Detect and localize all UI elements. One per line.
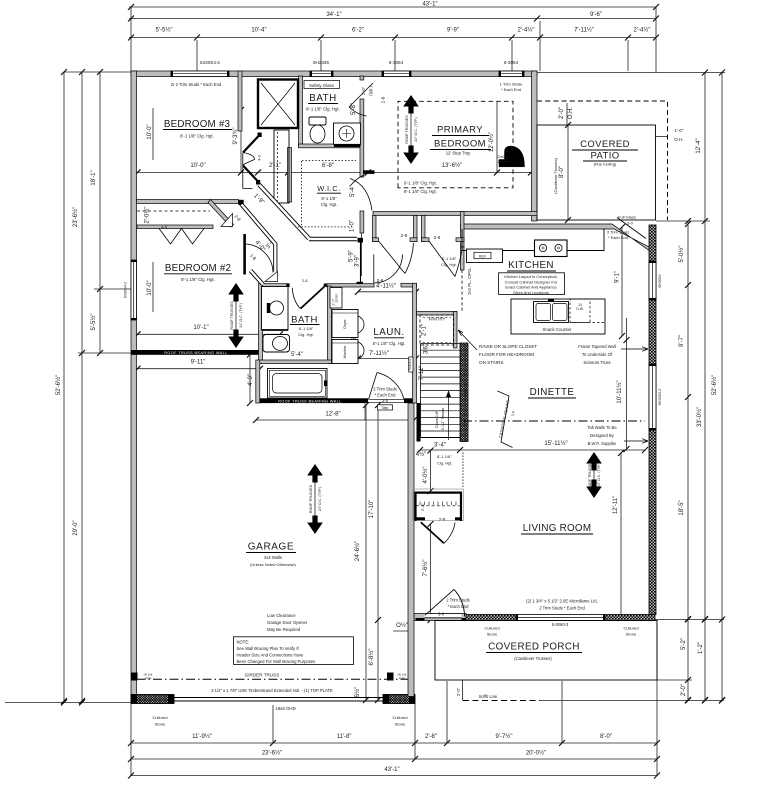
svg-text:B.W.P. Supplier: B.W.P. Supplier bbox=[588, 441, 617, 446]
svg-text:Washer: Washer bbox=[343, 345, 347, 359]
svg-text:2'-0": 2'-0" bbox=[456, 687, 461, 696]
svg-text:4'-11½": 4'-11½" bbox=[376, 283, 396, 290]
svg-text:6-3054: 6-3054 bbox=[504, 60, 519, 65]
svg-text:(typ.): (typ.) bbox=[368, 86, 373, 96]
svg-text:5'-4": 5'-4" bbox=[350, 185, 356, 197]
svg-text:(2) 1 3/4" x 5 1/2" 2.0E Micro: (2) 1 3/4" x 5 1/2" 2.0E Microllame LVL bbox=[526, 599, 598, 604]
svg-text:9'-6": 9'-6" bbox=[590, 12, 602, 18]
svg-text:See Wall Bracing Plan To Verif: See Wall Bracing Plan To Verify If bbox=[237, 646, 300, 651]
svg-text:3 Trim Studs: 3 Trim Studs bbox=[607, 230, 629, 235]
svg-text:5'-5½": 5'-5½" bbox=[90, 314, 97, 331]
svg-text:FLOOR FOR HEADROOM: FLOOR FOR HEADROOM bbox=[479, 352, 534, 357]
svg-text:6H2436: 6H2436 bbox=[313, 60, 330, 65]
svg-text:8'-1 1/8": 8'-1 1/8" bbox=[299, 326, 314, 331]
svg-text:9'-1 1/8" Clg. Hgt.: 9'-1 1/8" Clg. Hgt. bbox=[404, 181, 437, 186]
svg-text:1'-7": 1'-7" bbox=[332, 298, 336, 306]
svg-text:8'-1 1/8": 8'-1 1/8" bbox=[437, 454, 452, 459]
svg-text:ROOF TRUSS BEARING WALL: ROOF TRUSS BEARING WALL bbox=[164, 351, 227, 355]
svg-text:2-8: 2-8 bbox=[434, 235, 441, 240]
svg-text:3'6": 3'6" bbox=[424, 344, 430, 354]
svg-text:3'-9": 3'-9" bbox=[355, 255, 361, 267]
svg-text:8'-1 1/8": 8'-1 1/8" bbox=[321, 196, 337, 201]
svg-text:9 1/2" Treads: 9 1/2" Treads bbox=[441, 408, 445, 431]
svg-text:COVERED: COVERED bbox=[580, 139, 630, 150]
svg-text:REF: REF bbox=[479, 255, 487, 259]
svg-text:3 1/2" x 1 7/8" USE Timberstra: 3 1/2" x 1 7/8" USE Timberstrand Extende… bbox=[211, 688, 333, 693]
svg-text:Clg. Hgt.: Clg. Hgt. bbox=[321, 202, 337, 207]
svg-text:LAUN.: LAUN. bbox=[373, 327, 404, 338]
svg-text:3'-4": 3'-4" bbox=[434, 443, 446, 449]
svg-text:2'-0": 2'-0" bbox=[681, 684, 687, 696]
svg-text:24" O.C. (TYP.): 24" O.C. (TYP.) bbox=[414, 117, 418, 142]
svg-text:Down 14R: Down 14R bbox=[435, 410, 439, 428]
svg-text:2'-1": 2'-1" bbox=[269, 163, 281, 169]
svg-text:2-8: 2-8 bbox=[439, 517, 446, 522]
svg-text:6430S4-2: 6430S4-2 bbox=[124, 282, 128, 298]
svg-text:10'-0": 10'-0" bbox=[190, 163, 205, 169]
svg-text:O.H.: O.H. bbox=[568, 107, 574, 120]
svg-text:Sizes And Locations: Sizes And Locations bbox=[513, 290, 549, 295]
svg-text:Tall Walls To Be: Tall Walls To Be bbox=[587, 425, 617, 430]
svg-text:10'-0": 10'-0" bbox=[147, 280, 153, 295]
svg-text:4'-0½": 4'-0½" bbox=[422, 467, 429, 484]
svg-text:10'-0": 10'-0" bbox=[147, 124, 153, 139]
svg-text:ROOF TRUSSES: ROOF TRUSSES bbox=[405, 115, 409, 144]
svg-text:29'-0": 29'-0" bbox=[73, 520, 79, 535]
svg-text:Exact Cabinet And Appliance: Exact Cabinet And Appliance bbox=[505, 285, 557, 290]
svg-text:6H3054-2: 6H3054-2 bbox=[658, 389, 662, 406]
svg-text:2'-4½": 2'-4½" bbox=[518, 27, 535, 34]
svg-text:18x8 OHD: 18x8 OHD bbox=[275, 706, 296, 711]
svg-text:W.I.C.: W.I.C. bbox=[317, 184, 340, 193]
svg-text:15'-11½": 15'-11½" bbox=[544, 440, 567, 447]
svg-text:studs: studs bbox=[399, 676, 406, 680]
svg-text:11'-8": 11'-8" bbox=[337, 734, 352, 740]
svg-text:* Each End: * Each End bbox=[448, 604, 470, 609]
svg-text:Stone: Stone bbox=[395, 722, 406, 727]
svg-text:Garage Door Opener: Garage Door Opener bbox=[267, 620, 308, 625]
svg-text:Clg. Hgt.: Clg. Hgt. bbox=[437, 461, 453, 466]
svg-text:4-0: 4-0 bbox=[161, 225, 168, 230]
svg-text:Low Clearance: Low Clearance bbox=[267, 613, 296, 618]
svg-text:7'-11½": 7'-11½" bbox=[574, 27, 594, 34]
svg-text:(Unless Noted Otherwise): (Unless Noted Otherwise) bbox=[250, 562, 296, 567]
svg-text:43'-1": 43'-1" bbox=[422, 2, 437, 8]
svg-text:6H3054: 6H3054 bbox=[658, 274, 662, 287]
svg-text:2'-0": 2'-0" bbox=[559, 107, 565, 119]
svg-text:3-0: 3-0 bbox=[382, 398, 389, 403]
svg-text:NOTE:: NOTE: bbox=[237, 640, 250, 645]
svg-text:BATH: BATH bbox=[309, 93, 336, 104]
svg-text:9'-11": 9'-11" bbox=[191, 360, 206, 366]
svg-text:3-0: 3-0 bbox=[438, 612, 445, 617]
svg-text:8'-0": 8'-0" bbox=[559, 166, 565, 178]
svg-text:DINETTE: DINETTE bbox=[530, 387, 575, 398]
svg-text:5'-4": 5'-4" bbox=[291, 352, 303, 358]
svg-text:3-0 PL. OPG.: 3-0 PL. OPG. bbox=[467, 267, 472, 295]
svg-text:10'-11½": 10'-11½" bbox=[616, 380, 623, 403]
svg-text:2 Trim Studs: 2 Trim Studs bbox=[373, 387, 397, 392]
svg-text:PRIMARY: PRIMARY bbox=[437, 125, 483, 136]
svg-text:ON STAIRS.: ON STAIRS. bbox=[479, 360, 505, 365]
svg-text:5½": 5½" bbox=[354, 687, 361, 697]
svg-text:Ceiling: Ceiling bbox=[498, 155, 509, 159]
svg-text:O.H.: O.H. bbox=[674, 137, 683, 142]
svg-text:2'-1": 2'-1" bbox=[422, 324, 428, 336]
svg-text:1'-0": 1'-0" bbox=[674, 128, 684, 133]
svg-text:Cultured: Cultured bbox=[152, 715, 167, 720]
svg-text:12' Step Tray: 12' Step Tray bbox=[446, 151, 471, 156]
svg-text:HAND RAIL: HAND RAIL bbox=[463, 382, 467, 398]
svg-text:11'-9½": 11'-9½" bbox=[192, 733, 212, 740]
svg-text:Cultured: Cultured bbox=[623, 626, 638, 631]
svg-text:5-3060-3: 5-3060-3 bbox=[552, 622, 569, 627]
svg-text:2'-0½": 2'-0½" bbox=[144, 207, 151, 224]
svg-text:12'-8": 12'-8" bbox=[325, 412, 340, 418]
svg-text:6'-8½": 6'-8½" bbox=[368, 649, 375, 666]
svg-text:Profile: Profile bbox=[498, 160, 508, 164]
svg-text:3-0: 3-0 bbox=[627, 221, 634, 226]
svg-text:* Each End: * Each End bbox=[501, 87, 521, 92]
svg-text:5'-2": 5'-2" bbox=[681, 638, 687, 650]
svg-text:Stone: Stone bbox=[155, 722, 166, 727]
svg-text:Been Changed For Wall Bracing: Been Changed For Wall Bracing Purposes bbox=[237, 659, 316, 664]
svg-text:9'-9": 9'-9" bbox=[447, 28, 459, 34]
svg-text:Stone: Stone bbox=[487, 632, 498, 637]
svg-text:34'-1": 34'-1" bbox=[326, 12, 341, 18]
svg-text:2-8: 2-8 bbox=[381, 96, 386, 103]
svg-text:studs: studs bbox=[145, 676, 152, 680]
svg-text:ROOF TRUSSES: ROOF TRUSSES bbox=[230, 301, 234, 330]
svg-text:GIRDER TRUSS: GIRDER TRUSS bbox=[245, 673, 280, 678]
svg-text:6-3054: 6-3054 bbox=[389, 60, 404, 65]
svg-text:BATH: BATH bbox=[291, 314, 318, 325]
svg-text:LIVING ROOM: LIVING ROOM bbox=[523, 523, 592, 534]
svg-text:Cultured: Cultured bbox=[484, 626, 499, 631]
svg-text:* Each End: * Each End bbox=[375, 393, 397, 398]
svg-text:52'-6½": 52'-6½" bbox=[55, 375, 62, 395]
svg-text:24" O.C. (TYP.): 24" O.C. (TYP.) bbox=[318, 487, 322, 512]
svg-text:HOOKS: HOOKS bbox=[408, 359, 412, 371]
svg-text:Consult Cabinet Designer For: Consult Cabinet Designer For bbox=[505, 279, 558, 284]
svg-text:Snack Counter: Snack Counter bbox=[542, 327, 572, 332]
svg-text:8'-1 1/8": 8'-1 1/8" bbox=[442, 256, 457, 261]
svg-text:5'-5½": 5'-5½" bbox=[156, 27, 173, 34]
svg-text:2'-0": 2'-0" bbox=[361, 86, 366, 95]
svg-text:1 Trim Stude: 1 Trim Stude bbox=[500, 82, 523, 87]
svg-text:5'-0½": 5'-0½" bbox=[678, 246, 685, 263]
svg-text:8'-1 1/8" Clg. Hgt.: 8'-1 1/8" Clg. Hgt. bbox=[306, 107, 340, 112]
svg-text:ROOF TRUSSES: ROOF TRUSSES bbox=[309, 484, 313, 513]
svg-text:Clg. Hgt.: Clg. Hgt. bbox=[441, 262, 457, 267]
svg-text:4-0: 4-0 bbox=[257, 154, 262, 161]
svg-text:Step: Step bbox=[382, 406, 389, 410]
svg-text:2r 2 Trim Studs * Each End: 2r 2 Trim Studs * Each End bbox=[171, 82, 222, 87]
svg-text:May Be Required: May Be Required bbox=[267, 627, 301, 632]
svg-text:52'-6½": 52'-6½" bbox=[711, 375, 718, 395]
svg-text:4½": 4½" bbox=[416, 451, 426, 458]
svg-text:2-8: 2-8 bbox=[401, 233, 408, 238]
svg-text:1'-2": 1'-2" bbox=[698, 642, 704, 654]
svg-text:8'-0": 8'-0" bbox=[600, 734, 612, 740]
svg-text:Dryer: Dryer bbox=[343, 319, 347, 329]
svg-text:7'-11½": 7'-11½" bbox=[369, 350, 389, 357]
svg-text:PATIO: PATIO bbox=[590, 151, 619, 162]
svg-text:Scissors Truss: Scissors Truss bbox=[583, 360, 610, 365]
svg-text:BEDROOM: BEDROOM bbox=[434, 139, 486, 150]
svg-text:6'-2": 6'-2" bbox=[352, 28, 364, 34]
svg-text:Soffit Line: Soffit Line bbox=[479, 694, 498, 699]
svg-text:20'-0½": 20'-0½" bbox=[526, 750, 546, 757]
svg-text:RAISE OR SLOPE CLOSET: RAISE OR SLOPE CLOSET bbox=[479, 344, 537, 349]
svg-text:Designed By: Designed By bbox=[590, 433, 615, 438]
svg-text:43'-1": 43'-1" bbox=[384, 767, 399, 773]
svg-text:2x4 Walls: 2x4 Walls bbox=[264, 555, 282, 560]
svg-text:18'-5": 18'-5" bbox=[679, 500, 685, 515]
svg-text:6'-8": 6'-8" bbox=[322, 163, 334, 169]
svg-text:8'-1 1/8" Clg. Hgt.: 8'-1 1/8" Clg. Hgt. bbox=[373, 341, 406, 346]
svg-text:2-8: 2-8 bbox=[302, 279, 308, 283]
svg-text:Clg. Hgt.: Clg. Hgt. bbox=[298, 332, 314, 337]
svg-text:BEDROOM #2: BEDROOM #2 bbox=[165, 263, 231, 274]
svg-text:24'-6½": 24'-6½" bbox=[354, 541, 361, 561]
svg-text:18'-1": 18'-1" bbox=[91, 170, 97, 185]
svg-text:5'-9": 5'-9" bbox=[349, 250, 355, 262]
svg-text:Full Glass: Full Glass bbox=[618, 215, 636, 220]
svg-text:1'-0": 1'-0" bbox=[350, 220, 356, 232]
svg-text:24" O.C. (TYP.): 24" O.C. (TYP.) bbox=[597, 463, 601, 488]
svg-text:8'-1 1/8" Clg. Hgt.: 8'-1 1/8" Clg. Hgt. bbox=[180, 134, 214, 139]
svg-text:* Each End: * Each End bbox=[608, 235, 628, 240]
svg-text:33'-0½": 33'-0½" bbox=[696, 407, 703, 427]
svg-text:7'-11": 7'-11" bbox=[419, 366, 425, 381]
svg-text:O½": O½" bbox=[396, 622, 408, 629]
svg-text:9'-7": 9'-7" bbox=[679, 335, 685, 347]
svg-text:Header Size And Connections Ha: Header Size And Connections Have bbox=[237, 653, 304, 658]
svg-text:(Cantilever Trusses): (Cantilever Trusses) bbox=[514, 656, 552, 661]
svg-text:Cultured: Cultured bbox=[392, 715, 407, 720]
svg-text:Safety Glass: Safety Glass bbox=[309, 83, 335, 88]
svg-text:8'-1 1/8" Clg. Hgt.: 8'-1 1/8" Clg. Hgt. bbox=[181, 277, 215, 282]
svg-text:9'-7½": 9'-7½" bbox=[496, 733, 513, 740]
svg-text:23'-6½": 23'-6½" bbox=[262, 750, 282, 757]
svg-text:Stone: Stone bbox=[626, 632, 637, 637]
svg-text:9'-1": 9'-1" bbox=[615, 271, 621, 283]
svg-text:KITCHEN: KITCHEN bbox=[508, 260, 554, 271]
svg-text:6430S4-2: 6430S4-2 bbox=[200, 60, 220, 65]
svg-text:COVERED PORCH: COVERED PORCH bbox=[488, 642, 580, 653]
svg-text:12'-11": 12'-11" bbox=[613, 496, 619, 514]
svg-text:2'-4½": 2'-4½" bbox=[634, 27, 651, 34]
svg-text:Frame Tapered Wall: Frame Tapered Wall bbox=[578, 344, 616, 349]
svg-text:4'-0": 4'-0" bbox=[248, 374, 254, 386]
svg-text:PANTRY: PANTRY bbox=[429, 317, 446, 322]
svg-text:23'-6½": 23'-6½" bbox=[72, 207, 79, 227]
svg-text:12'-4": 12'-4" bbox=[696, 138, 702, 153]
svg-text:8'-1 1/8" Clg. Hgt.: 8'-1 1/8" Clg. Hgt. bbox=[404, 189, 437, 194]
svg-text:2 Trim Studs: 2 Trim Studs bbox=[446, 598, 470, 603]
svg-text:13'-6½": 13'-6½" bbox=[442, 162, 462, 169]
svg-text:BEDROOM #3: BEDROOM #3 bbox=[164, 119, 231, 130]
svg-text:GARAGE: GARAGE bbox=[248, 542, 294, 553]
svg-text:D.W.: D.W. bbox=[576, 307, 583, 311]
svg-text:ROOF TRUSS BEARING WALL: ROOF TRUSS BEARING WALL bbox=[278, 399, 341, 403]
svg-text:2'-8": 2'-8" bbox=[425, 734, 437, 740]
svg-text:10'-4": 10'-4" bbox=[251, 28, 266, 34]
svg-text:7'-6½": 7'-6½" bbox=[422, 560, 429, 577]
svg-text:Kitchen Layout Is Conceptual,: Kitchen Layout Is Conceptual, bbox=[504, 274, 557, 279]
svg-text:(Cantilever Trusses): (Cantilever Trusses) bbox=[553, 157, 558, 193]
svg-text:2 Trim Studs * Each End: 2 Trim Studs * Each End bbox=[539, 606, 585, 611]
svg-text:2'-4": 2'-4" bbox=[420, 502, 425, 511]
svg-text:To Underside Of: To Underside Of bbox=[582, 352, 613, 357]
svg-text:24" O.C. (TYP.): 24" O.C. (TYP.) bbox=[239, 303, 243, 328]
svg-text:17'-10": 17'-10" bbox=[369, 500, 375, 519]
svg-text:ROOF TRUSSES: ROOF TRUSSES bbox=[588, 460, 592, 489]
svg-text:10'-1": 10'-1" bbox=[193, 325, 208, 331]
svg-text:(Flat Ceiling): (Flat Ceiling) bbox=[594, 162, 617, 167]
